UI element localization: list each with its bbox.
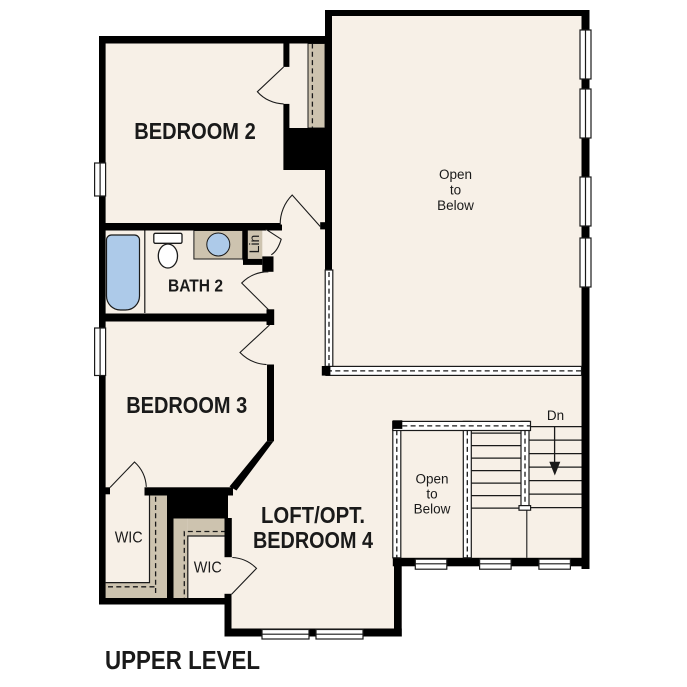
svg-text:UPPER LEVEL: UPPER LEVEL: [105, 647, 260, 675]
svg-text:WIC: WIC: [115, 530, 143, 547]
svg-text:Lin: Lin: [246, 235, 262, 254]
svg-text:BATH 2: BATH 2: [168, 276, 223, 296]
svg-text:Below: Below: [414, 502, 451, 517]
svg-text:Dn: Dn: [547, 408, 564, 423]
svg-text:Open: Open: [415, 472, 448, 487]
svg-text:to: to: [426, 487, 437, 502]
svg-text:to: to: [450, 183, 461, 198]
svg-text:Below: Below: [437, 198, 474, 213]
svg-text:LOFT/OPT.: LOFT/OPT.: [261, 502, 365, 528]
svg-text:BEDROOM 3: BEDROOM 3: [126, 392, 247, 418]
svg-text:BEDROOM 2: BEDROOM 2: [134, 118, 256, 144]
svg-text:WIC: WIC: [194, 560, 222, 577]
svg-text:BEDROOM 4: BEDROOM 4: [253, 527, 373, 553]
svg-text:Open: Open: [439, 167, 472, 182]
